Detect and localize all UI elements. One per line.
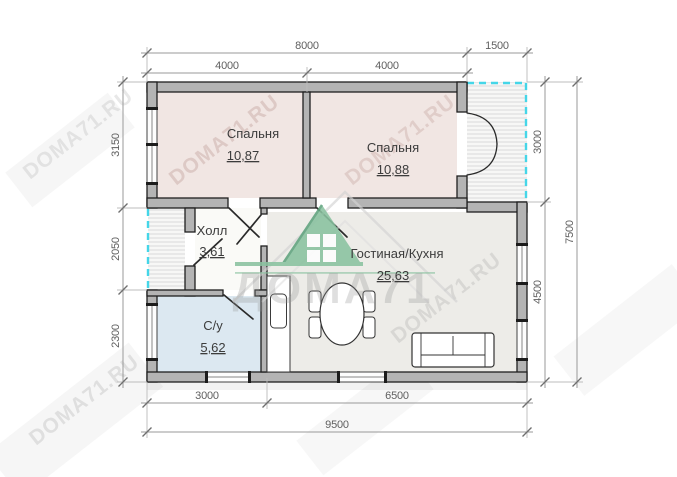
dim-top-bedroom1: 4000 — [215, 60, 239, 72]
porch-floor — [148, 208, 185, 290]
room-label-bedroom2: Спальня — [367, 140, 419, 155]
wall-porch-east-a — [185, 208, 195, 232]
floor-plan: DOMA71.RU DOMA71.RU DOMA71.RU DOMA71.RU … — [0, 0, 677, 477]
window-icon — [146, 107, 158, 185]
chair-icon — [363, 317, 375, 338]
dim-left-bathroom: 2300 — [110, 324, 122, 348]
window-icon — [516, 243, 528, 285]
room-area-bedroom2: 10,88 — [377, 162, 410, 177]
dim-top-main: 8000 — [295, 40, 319, 52]
room-label-bedroom1: Спальня — [227, 126, 279, 141]
floor-plan-page: DOMA71.RU DOMA71.RU DOMA71.RU DOMA71.RU … — [0, 0, 677, 477]
wall-south-a — [147, 372, 206, 382]
dim-top-terrace: 1500 — [485, 40, 509, 52]
wall-south-c — [386, 372, 527, 382]
wall-east-a — [517, 202, 527, 244]
dim-bottom-bath: 3000 — [195, 390, 219, 402]
room-area-living: 25,63 — [377, 268, 410, 283]
ground-shadow — [147, 382, 527, 390]
room-area-bedroom1: 10,87 — [227, 148, 260, 163]
dim-right-living: 4500 — [532, 280, 544, 304]
room-area-bathroom: 5,62 — [200, 340, 225, 355]
wall-bedroom-partition — [303, 92, 310, 198]
wall-west-a — [147, 82, 157, 108]
dim-right-total: 7500 — [564, 220, 576, 244]
sofa-icon — [412, 333, 494, 367]
wall-bedrooms-south-c — [348, 198, 467, 208]
window-icon — [337, 371, 387, 383]
dim-left-bedroom: 3150 — [110, 133, 122, 157]
dim-top-bedroom2: 4000 — [375, 60, 399, 72]
room-label-living: Гостиная/Кухня — [351, 246, 444, 261]
chair-icon — [309, 317, 321, 338]
room-area-hall: 3,61 — [199, 244, 224, 259]
wall-terrace-west-a — [457, 82, 467, 112]
wall-east-b — [517, 284, 527, 320]
room-label-bathroom: С/у — [203, 318, 223, 333]
dim-right-terrace: 3000 — [532, 130, 544, 154]
wall-bedrooms-south-a — [147, 198, 228, 208]
dim-bottom-total: 9500 — [325, 419, 349, 431]
window-icon — [146, 303, 158, 361]
window-icon — [516, 319, 528, 361]
wall-hall-east-a — [261, 208, 267, 214]
wall-bathroom-north-a — [147, 290, 223, 296]
wall-south-b — [250, 372, 338, 382]
window-icon — [205, 371, 251, 383]
dim-left-porch: 2050 — [110, 237, 122, 261]
room-label-hall: Холл — [197, 223, 228, 238]
dim-bottom-living: 6500 — [385, 390, 409, 402]
wall-bedrooms-south-b — [260, 198, 316, 208]
